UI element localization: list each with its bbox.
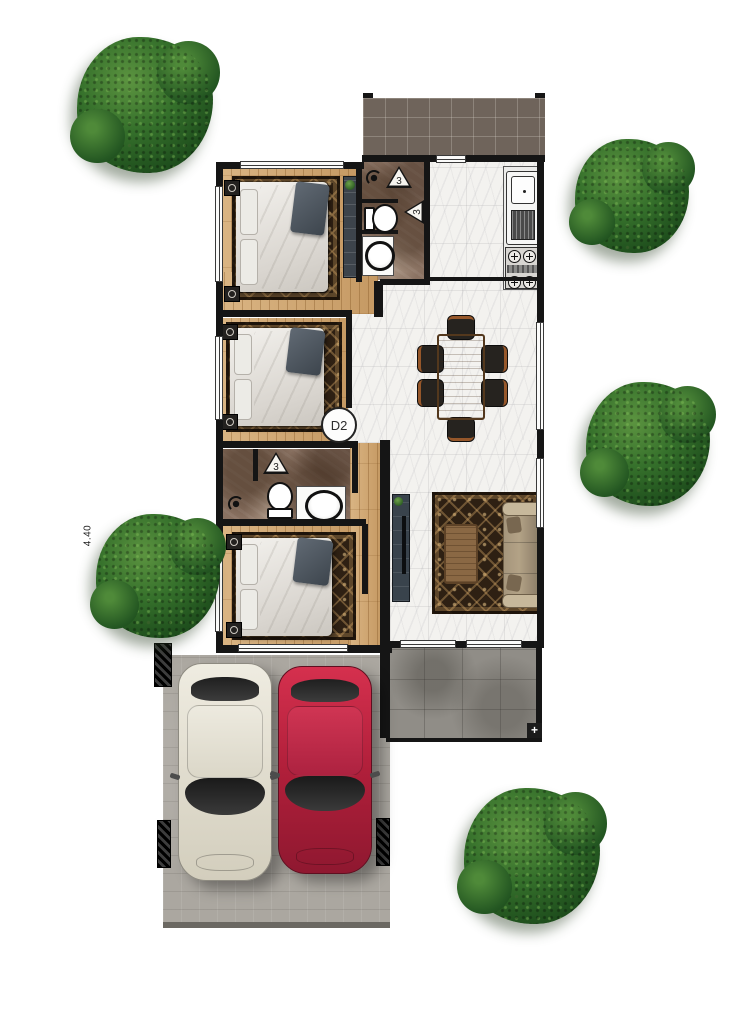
nightstand <box>224 286 240 302</box>
tree <box>586 382 710 506</box>
dining-table <box>437 334 485 420</box>
window <box>536 458 544 528</box>
wall-segment <box>216 519 366 526</box>
burner-icon <box>508 250 521 263</box>
window <box>400 640 456 648</box>
burner-icon <box>523 250 536 263</box>
bedroom1-bed <box>236 182 328 292</box>
gray-throw-blanket <box>286 327 326 376</box>
tv-console <box>392 494 410 602</box>
car-rear-glass <box>191 677 259 701</box>
bedroom3-bed <box>236 538 332 636</box>
door-tag-text: D2 <box>331 418 348 433</box>
window <box>215 186 223 282</box>
pillow <box>234 334 252 375</box>
wall-segment <box>346 315 352 408</box>
gray-throw-blanket <box>293 537 334 586</box>
bath1-round-sink <box>365 241 395 271</box>
car-hood-line <box>196 854 255 871</box>
gray-throw-blanket <box>290 181 330 235</box>
car-windshield <box>185 778 264 815</box>
wall-segment <box>216 310 352 317</box>
window <box>238 644 348 652</box>
wall-segment <box>380 279 430 285</box>
pillow <box>240 544 258 585</box>
shower-icon <box>366 170 382 186</box>
tree <box>77 37 213 173</box>
sofa-pillow <box>506 516 522 534</box>
bath2-divider <box>253 449 258 481</box>
wall-segment <box>374 281 383 317</box>
window <box>536 322 544 430</box>
bedroom2-bed <box>230 328 324 426</box>
bath1-divider <box>362 199 398 203</box>
column <box>380 650 390 738</box>
wall-segment <box>352 443 358 493</box>
toilet-tank <box>267 508 293 519</box>
car-rear-glass <box>291 679 359 702</box>
car-windshield <box>285 776 364 811</box>
toilet-icon <box>267 482 293 511</box>
porch-corner-tick <box>535 93 545 98</box>
pillow <box>240 589 258 630</box>
dining-chair <box>482 346 507 372</box>
car-hood-line <box>296 848 355 864</box>
tree <box>96 514 220 638</box>
dining-chair <box>482 380 507 406</box>
dimension-label: 4.40 <box>83 516 94 556</box>
kitchen-sink <box>506 171 540 245</box>
tv-icon <box>402 516 406 574</box>
porch-corner-tick <box>363 93 373 98</box>
tree <box>575 139 689 253</box>
shower-icon <box>228 496 244 512</box>
plant-pot <box>345 180 355 190</box>
nightstand <box>226 534 242 550</box>
terrace-corner-marker: + <box>527 723 542 738</box>
bath2-oval-sink <box>305 490 343 522</box>
wall-segment <box>424 155 430 282</box>
entry-door-opening <box>436 155 466 163</box>
wall-hall-living <box>380 440 390 648</box>
stove-grill <box>507 265 537 273</box>
sofa-pillow <box>506 574 523 592</box>
column <box>154 643 172 687</box>
plant-pot <box>394 497 403 506</box>
entry-porch-floor <box>363 98 545 156</box>
terrace-edge-bottom <box>386 738 542 742</box>
tree <box>464 788 600 924</box>
door-tag-d2: D2 <box>321 407 357 443</box>
drain-rack <box>511 210 535 240</box>
carport-edge <box>163 922 390 928</box>
pillow <box>240 239 258 285</box>
white-car <box>178 663 272 881</box>
window <box>215 336 223 420</box>
nightstand <box>222 414 238 430</box>
wall-segment <box>428 277 539 281</box>
red-car <box>278 666 372 874</box>
wall-segment <box>362 524 368 594</box>
car-roof <box>187 705 262 778</box>
window <box>466 640 522 648</box>
nightstand <box>222 324 238 340</box>
pillow <box>240 189 258 235</box>
column <box>376 818 390 866</box>
floor-plan-canvas: 3 3 3 <box>0 0 750 1022</box>
column <box>157 820 171 868</box>
nightstand <box>224 180 240 196</box>
dining-chair <box>448 418 474 441</box>
window <box>240 161 344 169</box>
toilet-icon <box>372 204 398 233</box>
coffee-table <box>444 524 478 584</box>
terrace-floor <box>386 648 542 740</box>
sink-bowl <box>511 176 535 204</box>
nightstand <box>226 622 242 638</box>
wall-segment <box>356 162 362 282</box>
car-roof <box>287 706 362 776</box>
